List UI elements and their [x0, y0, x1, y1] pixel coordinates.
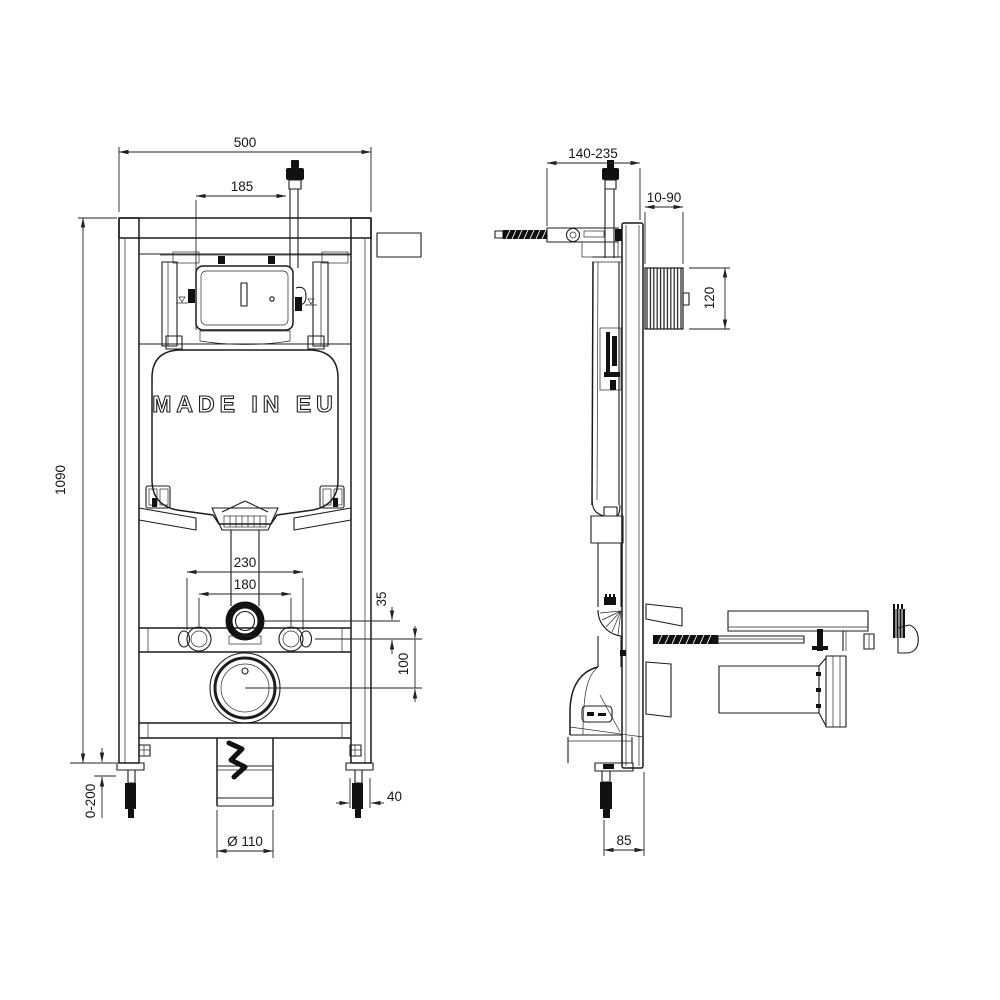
hook-icon	[305, 299, 317, 305]
dim-depth-range: 140-235	[547, 146, 640, 226]
flush-shaft-block	[645, 268, 689, 329]
front-view: MADE IN EU	[53, 135, 422, 858]
inspection-box	[176, 266, 317, 345]
pin-hole	[270, 297, 274, 301]
mounting-rod	[653, 611, 874, 651]
dim-front-width: 500	[119, 135, 371, 212]
fan-hatch	[600, 611, 621, 635]
svg-text:100: 100	[396, 653, 411, 676]
dim-leg-extension: 0-200	[83, 748, 116, 818]
dim-fixing-outer: 230	[187, 555, 303, 630]
wing-clip-left	[146, 486, 170, 508]
svg-text:1090: 1090	[53, 465, 68, 495]
svg-text:35: 35	[374, 591, 389, 606]
dim-drop-small: 35	[263, 591, 422, 654]
dim-frame-height: 1090	[53, 218, 117, 763]
dim-drop-large: 100	[245, 626, 422, 702]
flush-slot	[241, 283, 247, 306]
dim-plate-depth-range: 10-90	[645, 190, 683, 264]
wing-clip-right	[320, 486, 344, 508]
svg-text:Ø 110: Ø 110	[227, 834, 263, 849]
dim-drain-diameter: Ø 110	[217, 810, 273, 858]
outlet-grate	[224, 516, 266, 527]
svg-text:120: 120	[702, 287, 717, 310]
threaded-rod	[495, 230, 547, 239]
outlet-connector	[719, 656, 846, 727]
tank-made-in-label: MADE IN EU	[152, 391, 337, 417]
technical-drawing-page: MADE IN EU	[0, 0, 1000, 1000]
adjustable-leg-side	[600, 782, 612, 809]
accessories	[646, 604, 918, 727]
water-trap-icon	[229, 743, 245, 777]
wall-bracket-arm	[495, 228, 622, 257]
frame-post-side	[622, 223, 643, 768]
svg-text:180: 180	[234, 577, 257, 592]
frame-foot-side	[595, 763, 633, 818]
dim-shaft-height: 120	[689, 268, 730, 329]
foot-plate-left	[117, 763, 144, 770]
dim-leg-width: 40	[336, 778, 402, 808]
svg-text:10-90: 10-90	[647, 190, 682, 205]
svg-text:185: 185	[231, 179, 254, 194]
outlet-elbow-side	[568, 610, 643, 763]
left-clip	[188, 289, 195, 303]
water-inlet-pipe	[286, 160, 304, 268]
svg-text:0-200: 0-200	[83, 784, 98, 819]
drain-pipe-front	[217, 738, 273, 806]
svg-text:140-235: 140-235	[568, 146, 618, 161]
water-inlet-pipe-side	[602, 160, 619, 258]
seal-brush-icon	[604, 597, 616, 605]
installation-frame-drawing: MADE IN EU	[0, 0, 1000, 1000]
cistern-tank-side	[591, 257, 623, 607]
adjustable-leg-left	[125, 770, 136, 818]
tool-icon	[587, 712, 594, 716]
wall-bracket-wedge-bottom	[646, 662, 671, 717]
flush-bend-ring	[229, 605, 261, 644]
adjustable-leg-right	[352, 770, 363, 818]
svg-text:40: 40	[387, 789, 402, 804]
frame-feet-front	[117, 745, 373, 818]
wall-plug-and-cap	[893, 604, 918, 653]
flush-valve-mechanism	[600, 328, 621, 390]
side-view: 140-235 10-90 120 85	[495, 146, 918, 856]
svg-text:85: 85	[616, 833, 631, 848]
shaft-knob	[683, 293, 689, 305]
bar-icon	[598, 713, 606, 716]
foot-plate-right	[346, 763, 373, 770]
wall-bracket-wedge-top	[646, 604, 682, 626]
flush-plate-box	[377, 233, 421, 257]
svg-text:500: 500	[234, 135, 257, 150]
hook-icon	[176, 297, 188, 303]
svg-text:230: 230	[234, 555, 257, 570]
